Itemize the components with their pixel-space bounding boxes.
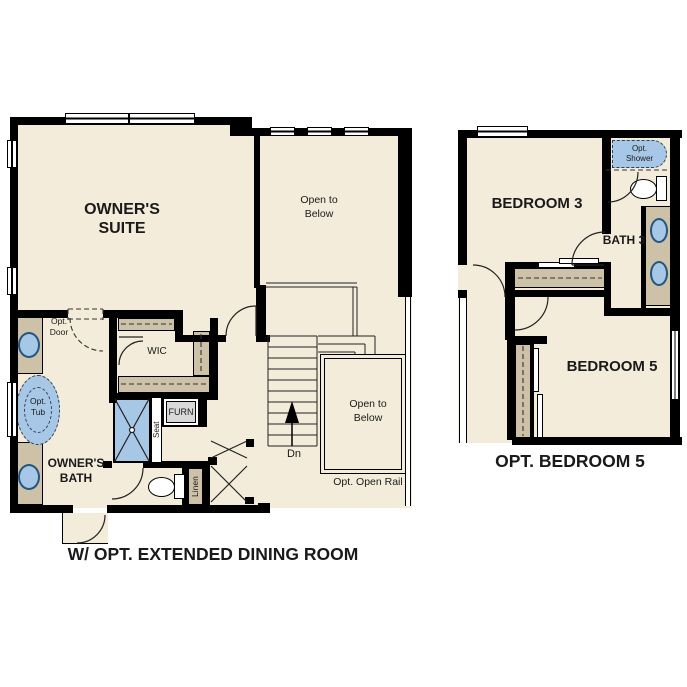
toilet-tank xyxy=(174,474,185,499)
door-stub-3 xyxy=(245,497,254,504)
open-to-below-lower-label: Open to Below xyxy=(346,397,390,425)
bedroom3-closet-door-2 xyxy=(559,258,599,264)
wall-wic-right xyxy=(210,318,218,400)
bedroom3-label: BEDROOM 3 xyxy=(462,195,612,214)
r-sink-2 xyxy=(650,261,668,286)
door-stub-1 xyxy=(208,457,217,465)
opt-shower-label: Opt. Shower xyxy=(620,144,660,164)
r-wall-left-thin xyxy=(459,298,467,443)
window-loft-2 xyxy=(307,127,332,136)
wall-suite-bottom-b xyxy=(183,335,226,342)
wic-shelf-top xyxy=(118,318,175,331)
wall-bottom-b xyxy=(107,505,258,513)
left-plan-caption: W/ OPT. EXTENDED DINING ROOM xyxy=(10,544,416,566)
r-wall-vanity-west xyxy=(641,206,646,316)
r-wall-hall-east xyxy=(505,262,515,340)
r-wall-closet3-bottom xyxy=(505,290,611,297)
opt-shower: Opt. Shower xyxy=(612,140,667,168)
furnace-label: FURN xyxy=(169,407,194,417)
bath3-label: BATH 3 xyxy=(602,233,646,248)
wall-top-step-stub xyxy=(230,117,252,136)
wall-suite-bottom-a2 xyxy=(103,310,183,318)
linen-label: Linen xyxy=(188,468,203,505)
seat-label: Seat xyxy=(152,422,161,438)
wall-wic-left xyxy=(109,318,117,403)
sink-2 xyxy=(18,464,40,490)
window-suite-top-2 xyxy=(129,113,195,124)
opt-open-rail-label: Opt. Open Rail xyxy=(323,476,413,489)
wic-label: WIC xyxy=(141,346,173,359)
window-loft-3 xyxy=(344,127,369,136)
shower-seat: Seat xyxy=(151,397,162,463)
r-wall-closet5-left xyxy=(507,344,515,440)
bedroom5-closet-door-1 xyxy=(533,348,539,392)
window-suite-top-1 xyxy=(65,113,129,124)
wall-step xyxy=(175,310,183,342)
r-wall-closet5-top xyxy=(507,336,547,344)
wall-furnace-right xyxy=(199,397,207,427)
window-left-3 xyxy=(7,382,17,437)
r-wall-bed5-top xyxy=(611,308,671,316)
sink-1 xyxy=(18,332,40,358)
wall-bottom-a xyxy=(10,505,73,513)
bedroom5-closet-door-2 xyxy=(537,394,543,438)
r-wall-left-stub xyxy=(458,290,467,298)
bedroom3-closet xyxy=(513,268,607,288)
window-left-1 xyxy=(7,140,17,168)
wic-shelf-bottom xyxy=(118,376,210,393)
furnace-box: FURN xyxy=(162,397,200,427)
r-wall-bottom xyxy=(512,437,682,445)
opt-door-label: Opt. Door xyxy=(42,316,76,338)
wall-stairs-left xyxy=(256,285,266,342)
r-wall-closet3-endcap xyxy=(604,262,611,316)
wall-right xyxy=(398,128,412,297)
window-loft-1 xyxy=(270,127,295,136)
toilet-bowl xyxy=(148,477,175,497)
open-to-below-upper-label: Open to Below xyxy=(297,193,341,221)
wall-suite-right xyxy=(254,128,260,288)
owners-suite-label: OWNER'S SUITE xyxy=(62,200,182,238)
opt-tub-label: Opt. Tub xyxy=(25,396,51,418)
entry-bump-out-floor xyxy=(62,513,108,544)
down-label: Dn xyxy=(280,448,308,462)
shower xyxy=(113,397,151,463)
furnace-inner: FURN xyxy=(166,401,196,423)
wall-bottom-stub xyxy=(258,503,270,513)
r-sink-1 xyxy=(650,218,668,243)
wall-linen-right xyxy=(203,468,210,505)
floor-plan-sheet: Seat FURN OWNER'S SUITE Open to Below Op… xyxy=(0,0,687,687)
r-toilet-bowl xyxy=(630,179,657,199)
bedroom5-closet xyxy=(515,344,531,438)
right-plan-caption: OPT. BEDROOM 5 xyxy=(458,451,682,473)
window-left-2 xyxy=(7,267,17,295)
r-wall-bath-west xyxy=(602,138,611,234)
owners-bath-label: OWNER'S BATH xyxy=(39,456,113,486)
r-window-top xyxy=(477,126,528,137)
r-toilet-tank xyxy=(656,176,667,201)
bedroom5-label: BEDROOM 5 xyxy=(547,358,677,377)
door-stub-2 xyxy=(246,439,254,447)
